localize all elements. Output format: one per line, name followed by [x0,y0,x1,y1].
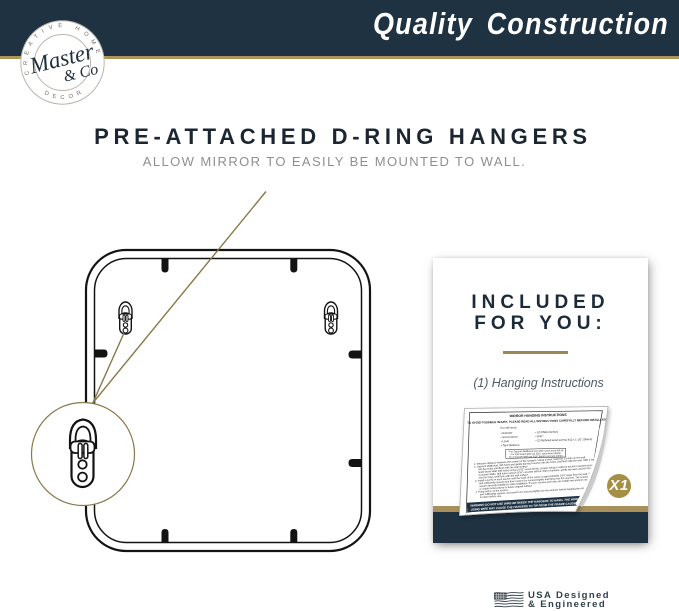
svg-text:• Drill *: • Drill * [535,434,543,438]
svg-text:• Level: • Level [501,439,510,443]
svg-text:You will need:: You will need: [500,425,517,429]
svg-text:• Screw Driver: • Screw Driver [501,435,518,439]
svg-text:• Tape Measure: • Tape Measure [501,443,520,447]
svg-text:• (2) Philip Anchors: • (2) Philip Anchors [535,430,558,435]
svg-text:• Hammer: • Hammer [501,431,513,435]
